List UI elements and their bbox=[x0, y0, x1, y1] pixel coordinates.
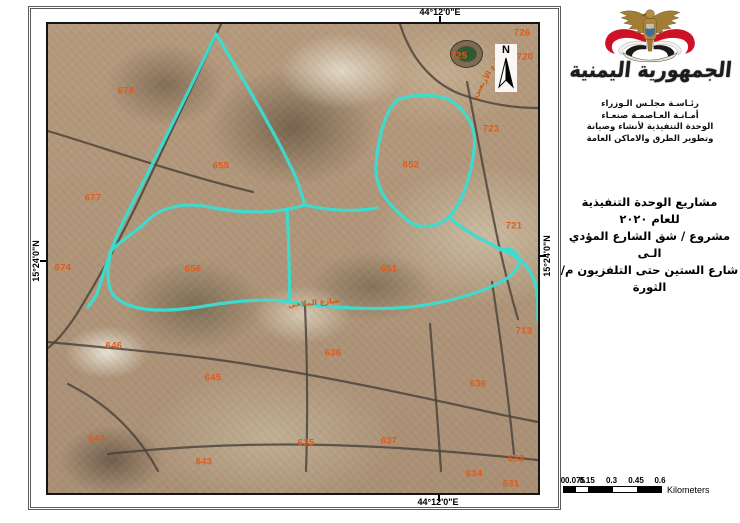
zone-label: 636 bbox=[470, 379, 487, 390]
scale-bar-label: 0.6 bbox=[654, 476, 665, 485]
org-line: وتطوير الطرق والاماكن العامة bbox=[563, 134, 737, 146]
zone-label: 725 bbox=[451, 51, 468, 62]
project-title-line: مشاريع الوحدة التنفيذية bbox=[559, 194, 740, 211]
zone-label: 651 bbox=[381, 264, 398, 275]
zone-label: 638 bbox=[325, 348, 342, 359]
coordinate-label-top: 44°12'0"E bbox=[390, 7, 490, 17]
scale-bar-segment bbox=[564, 487, 576, 492]
scale-bar-label: 0.15 bbox=[579, 476, 595, 485]
zone-label: 677 bbox=[85, 193, 102, 204]
zone-label: 721 bbox=[506, 221, 523, 232]
republic-calligraphy-title: الجمهورية اليمنية bbox=[561, 58, 739, 98]
project-title-line: مشروع / شق الشارع المؤدي الـى bbox=[559, 228, 740, 262]
scale-bar-unit: Kilometers bbox=[667, 485, 710, 495]
zone-label: 643 bbox=[196, 457, 213, 468]
zone-label: 652 bbox=[403, 160, 420, 171]
scale-bar: 00.0750.150.30.450.6 Kilometers bbox=[563, 476, 740, 498]
scale-bar-segment bbox=[637, 487, 661, 492]
zone-label: 646 bbox=[106, 341, 123, 352]
zone-label: 656 bbox=[185, 264, 202, 275]
scale-bar-segment bbox=[576, 487, 588, 492]
zone-label: 678 bbox=[118, 86, 135, 97]
project-title-block: مشاريع الوحدة التنفيذية للعام ٢٠٢٠ مشروع… bbox=[559, 194, 740, 296]
zone-label: 713 bbox=[516, 326, 533, 337]
zone-label: 655 bbox=[213, 161, 230, 172]
scale-bar-segment bbox=[613, 487, 638, 492]
map-frame: 6786556776746566517257267207236527217136… bbox=[46, 22, 540, 495]
coordinate-label-right: 15°24'0"N bbox=[542, 226, 554, 286]
zone-label: 644 bbox=[89, 434, 106, 445]
organization-text-block: رئـاسـة مجلـس الـوزراء أمـانـة العـاصمـة… bbox=[563, 99, 737, 145]
scale-bar-segment bbox=[588, 487, 613, 492]
north-arrow-label: N bbox=[495, 44, 517, 57]
scale-bar-label: 0.45 bbox=[628, 476, 644, 485]
zone-label: 635 bbox=[298, 438, 315, 449]
scale-bar-graphic bbox=[563, 486, 662, 493]
coordinate-label-bottom: 44°12'0"E bbox=[388, 497, 488, 507]
map-layout-page: 6786556776746566517257267207236527217136… bbox=[0, 0, 740, 523]
org-line: أمـانـة العـاصمـة صنعـاء bbox=[563, 111, 737, 123]
zone-label: 674 bbox=[55, 263, 72, 274]
zone-label: 723 bbox=[483, 124, 500, 135]
org-line: رئـاسـة مجلـس الـوزراء bbox=[563, 99, 737, 111]
zone-label: 645 bbox=[205, 373, 222, 384]
coordinate-label-left: 15°24'0"N bbox=[31, 231, 43, 291]
scale-bar-labels: 00.0750.150.30.450.6 bbox=[563, 476, 663, 485]
zone-label: 631 bbox=[503, 479, 520, 490]
org-line: الوحدة التنفيذية لأنشاء وصيانة bbox=[563, 122, 737, 134]
zone-label: 633 bbox=[508, 454, 525, 465]
north-arrow: N bbox=[495, 44, 517, 92]
zone-label: 726 bbox=[514, 28, 531, 39]
zone-label: 634 bbox=[466, 469, 483, 480]
zone-label: 637 bbox=[381, 436, 398, 447]
project-title-line: شارع الستين حتى التلفزيون م/الثورة bbox=[559, 262, 740, 296]
project-title-line: للعام ٢٠٢٠ bbox=[559, 211, 740, 228]
north-arrow-icon bbox=[495, 57, 517, 89]
zone-label: 720 bbox=[517, 52, 534, 63]
yemen-emblem-icon bbox=[596, 4, 704, 64]
scale-bar-label: 0.3 bbox=[606, 476, 617, 485]
